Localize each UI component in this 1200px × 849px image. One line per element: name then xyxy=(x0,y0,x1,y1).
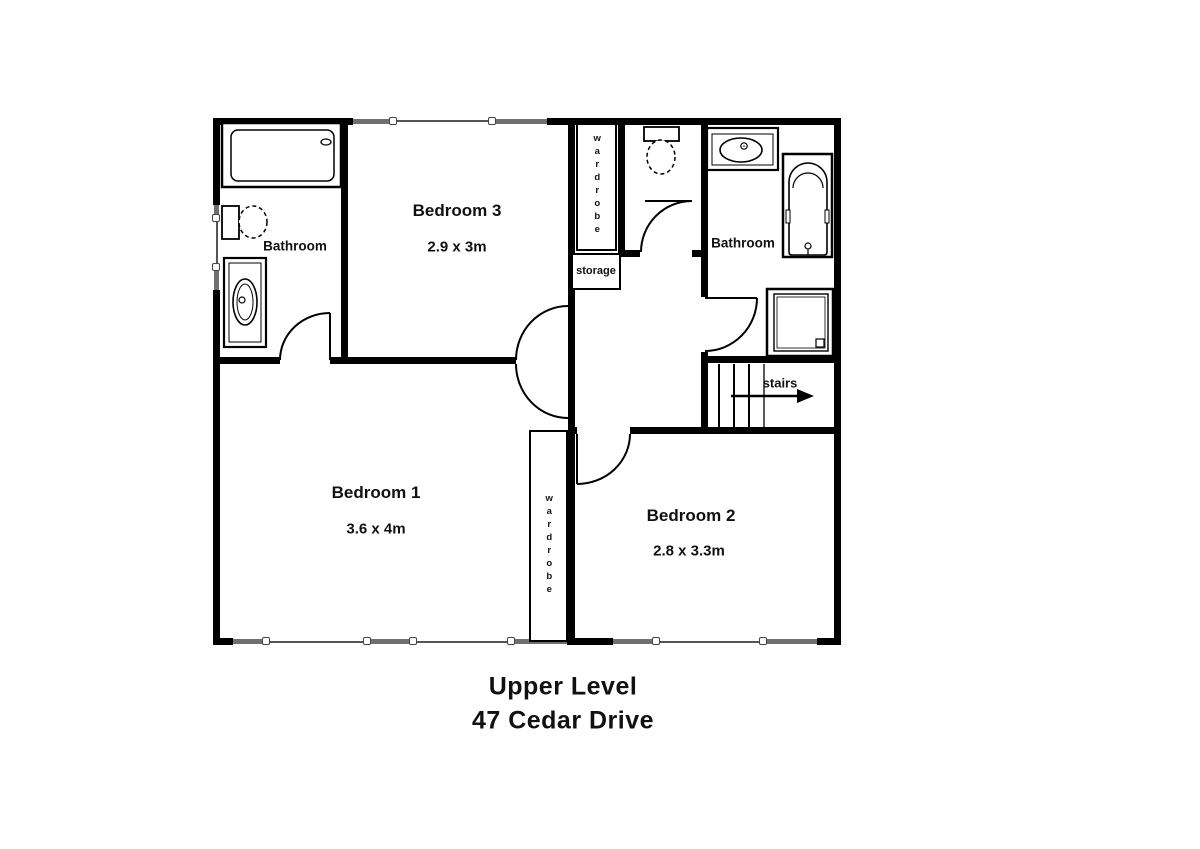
bedroom3-dims: 2.9 x 3m xyxy=(427,239,486,256)
wardrobe-bedroom1-label: wardrobe xyxy=(544,493,554,597)
bedroom1-dims: 3.6 x 4m xyxy=(346,521,405,538)
toilet-icon xyxy=(222,206,267,239)
floor-plan: Bedroom 3 2.9 x 3m Bedroom 1 3.6 x 4m Be… xyxy=(0,0,1200,849)
sink-icon xyxy=(707,128,778,170)
bathtub-icon xyxy=(783,154,832,257)
bathroom-right-label: Bathroom xyxy=(711,236,775,251)
shower-icon xyxy=(767,289,833,356)
bathtub-icon xyxy=(222,123,341,187)
bathroom-left-label: Bathroom xyxy=(263,239,327,254)
door-swing xyxy=(280,201,757,484)
stairs-arrow-icon xyxy=(731,389,814,403)
plan-title: Upper Level xyxy=(489,673,638,702)
plan-address: 47 Cedar Drive xyxy=(472,707,654,736)
toilet-icon xyxy=(644,127,679,174)
bedroom1-label: Bedroom 1 xyxy=(332,483,421,503)
stairs-label: stairs xyxy=(763,376,798,391)
bedroom3-label: Bedroom 3 xyxy=(413,201,502,221)
bedroom2-label: Bedroom 2 xyxy=(647,506,736,526)
storage-label: storage xyxy=(576,265,616,277)
wardrobe-top-label: wardrobe xyxy=(592,133,602,237)
bedroom2-dims: 2.8 x 3.3m xyxy=(653,543,725,560)
sink-icon xyxy=(224,258,266,347)
